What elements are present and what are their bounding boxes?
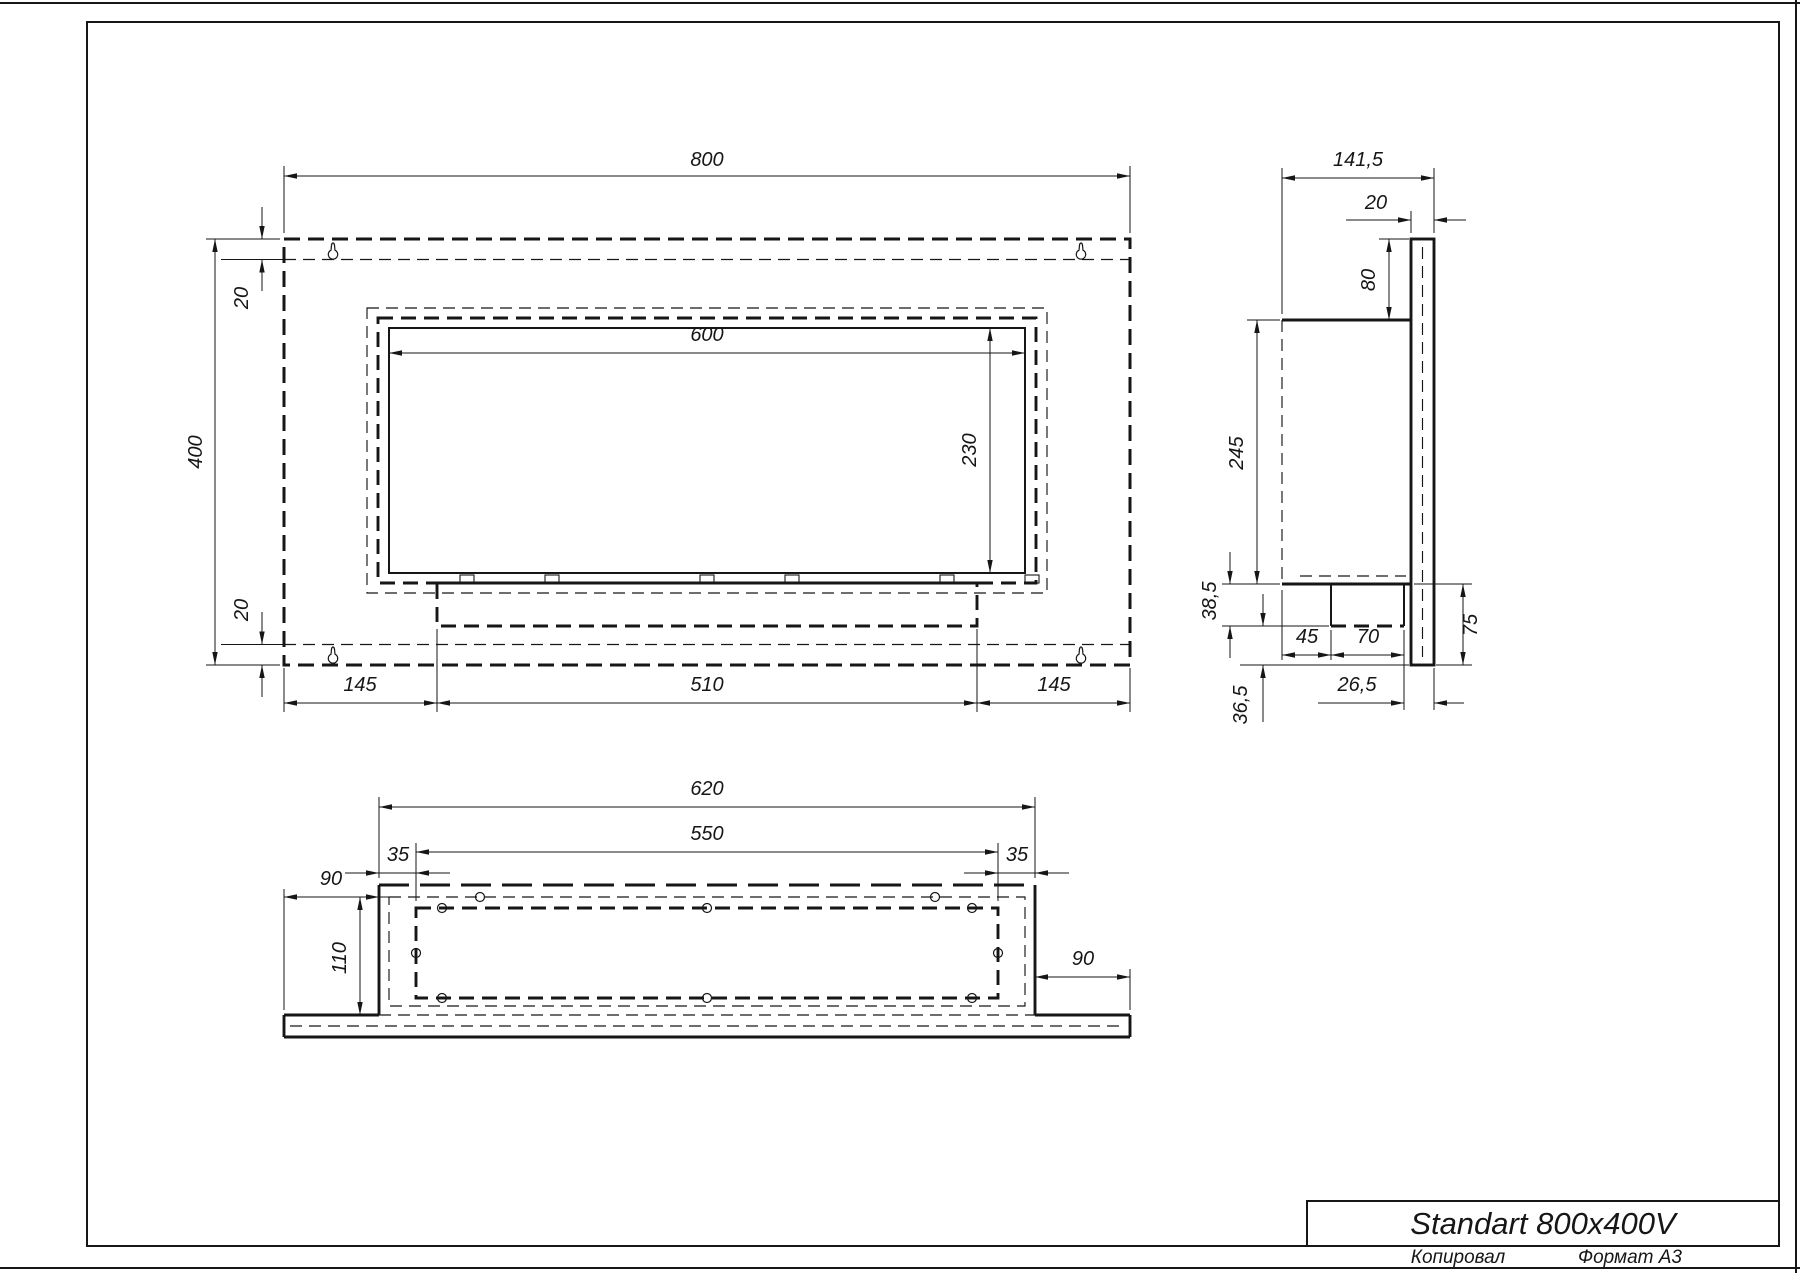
dim-label: 550 [690, 823, 723, 845]
front-opening-window [389, 328, 1025, 573]
dim-label: 35 [1006, 844, 1029, 866]
front-opening-outer-hidden [367, 308, 1047, 593]
dim-label: 45 [1296, 626, 1319, 648]
dim-label: 400 [185, 435, 207, 468]
dim-label: 620 [690, 778, 723, 800]
dim-bottom-right-flange: 90 [1035, 948, 1130, 1010]
dim-label: 145 [1037, 674, 1071, 696]
dim-label: 36,5 [1230, 685, 1252, 725]
dim-label: 35 [387, 844, 410, 866]
dim-side-panel-thickness: 20 [1346, 192, 1466, 233]
dim-label: 20 [231, 287, 253, 310]
bottom-back-panel [284, 1015, 1130, 1037]
dim-label: 800 [690, 149, 723, 171]
dim-side-tray-setback: 45 [1282, 590, 1331, 660]
bottom-view: 620 550 35 35 90 [284, 778, 1130, 1037]
dim-label: 230 [959, 433, 981, 467]
keyhole-slot-icon [1076, 243, 1085, 259]
keyhole-slot-icon [1076, 647, 1085, 663]
dim-bottom-right-inset: 35 [964, 844, 1069, 873]
side-back-panel [1411, 239, 1434, 665]
dim-label: 26,5 [1337, 674, 1378, 696]
dim-label: 38,5 [1199, 581, 1221, 621]
drawing-sheet: 800 400 20 20 600 [0, 0, 1800, 1273]
dim-label: 70 [1357, 626, 1379, 648]
dim-label: 20 [1364, 192, 1387, 214]
dim-label: 80 [1358, 269, 1380, 291]
dim-front-bottom-flange: 20 [221, 599, 284, 697]
drawing-frame [87, 22, 1779, 1246]
side-tray [1331, 584, 1404, 626]
drawing-title: Standart 800x400V [1410, 1206, 1679, 1241]
dim-label: 245 [1226, 435, 1248, 470]
dim-front-opening-height: 230 [959, 328, 990, 573]
footer-copied-label: Копировал [1411, 1247, 1506, 1268]
dim-label: 600 [690, 324, 723, 346]
dim-label: 90 [320, 868, 342, 890]
dim-side-box-top-offset: 80 [1358, 239, 1409, 320]
keyhole-slot-icon [328, 243, 337, 259]
dim-side-tray-back-gap: 26,5 [1318, 668, 1464, 710]
front-fuel-tray-hidden [437, 583, 977, 626]
dim-side-panel-below-box: 75 [1414, 584, 1482, 665]
footer-format-label: Формат А3 [1578, 1247, 1682, 1268]
dim-label: 141,5 [1333, 149, 1384, 171]
side-view: 141,5 20 80 245 38,5 [1199, 149, 1482, 724]
dim-front-bottom-row: 145 510 145 [284, 629, 1130, 712]
front-opening-frame [378, 318, 1036, 583]
dim-label: 145 [343, 674, 377, 696]
dim-bottom-left-inset: 35 [345, 844, 450, 873]
drawing-canvas: 800 400 20 20 600 [0, 0, 1800, 1273]
dim-label: 20 [231, 599, 253, 622]
dim-bottom-inner-depth: 110 [329, 897, 391, 1015]
dim-label: 90 [1072, 948, 1094, 970]
sheet-borders [0, 0, 1800, 1273]
dim-side-below-tray: 36,5 [1230, 594, 1409, 724]
dim-bottom-mount-span: 550 [416, 823, 998, 901]
dim-side-box-height: 245 [1222, 320, 1280, 584]
dim-front-overall-width: 800 [284, 149, 1130, 233]
front-view: 800 400 20 20 600 [185, 149, 1130, 712]
dim-side-tray-depth: 70 [1331, 626, 1404, 710]
dim-front-top-flange: 20 [221, 207, 284, 310]
footer-strip: Копировал Формат А3 [1411, 1247, 1683, 1268]
dim-bottom-left-flange: 90 [284, 868, 379, 1010]
dim-label: 510 [690, 674, 723, 696]
front-body-outline [284, 239, 1130, 665]
keyhole-slot-icon [328, 647, 337, 663]
bottom-inner-box-hidden [416, 908, 998, 998]
dim-label: 110 [329, 942, 351, 974]
title-block: Standart 800x400V [1307, 1201, 1779, 1246]
bottom-opening-hidden [389, 897, 1025, 1006]
dim-label: 75 [1460, 613, 1482, 636]
